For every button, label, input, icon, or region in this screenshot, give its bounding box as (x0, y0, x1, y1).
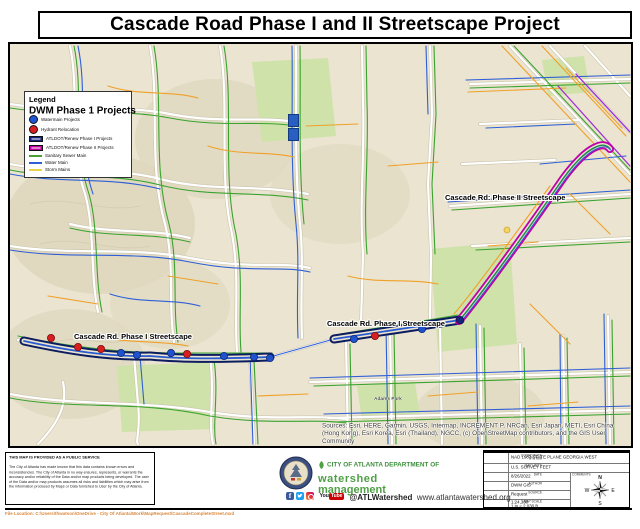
page-title: Cascade Road Phase I and II Streetscape … (110, 14, 560, 36)
date-value: 8/26/2022 (511, 474, 531, 479)
basemap-attribution: Sources: Esri, HERE, Garmin, USGS, Inter… (322, 422, 633, 448)
instagram-icon (306, 492, 314, 500)
city-of-atlanta-seal (279, 456, 313, 490)
legend-subtitle: DWM Phase 1 Projects (29, 105, 136, 116)
social-handle: @ATLWatershed (349, 493, 412, 502)
legend-item-phase1: ATLDOT/Renew Phase I Projects (29, 134, 127, 143)
legend-item-hydrant: Hydrant Relocation (29, 124, 127, 134)
compass-north: N (598, 475, 602, 481)
compass-south: S (598, 501, 602, 506)
compass-rose: N E S W (583, 472, 617, 506)
sewer-line-swatch-icon (29, 155, 42, 157)
adams-park-label: Adams Park (374, 396, 402, 401)
leaf-icon (318, 461, 325, 470)
disclaimer-box: THIS MAP IS PROVIDED AS A PUBLIC SERVICE… (5, 452, 155, 505)
file-location-text: File Location: C:\Users\thwatson\OneDriv… (5, 511, 234, 516)
legend-item-storm: Storm Mains (29, 166, 127, 173)
twitter-icon (296, 492, 304, 500)
disclaimer-body: The City of Atlanta has made known that … (9, 465, 153, 489)
title-bar: Cascade Road Phase I and II Streetscape … (38, 11, 632, 39)
poi-marker (504, 227, 510, 233)
storm-line-swatch-icon (29, 169, 42, 171)
phase2-swatch-icon (29, 145, 43, 151)
department-line: CITY OF ATLANTA DEPARTMENT OF (327, 462, 439, 468)
compass-west: W (585, 488, 590, 494)
footer-divider (5, 508, 632, 510)
legend-item-watermainline: Water Main (29, 159, 127, 166)
phase1-left-corridor-label: Cascade Rd. Phase I Streetscape (74, 332, 192, 341)
social-media-row: f YouTube @ATLWatershed www.atlantawater… (286, 488, 511, 504)
legend-item-phase2: ATLDOT/Renew Phase II Projects (29, 143, 127, 152)
author-value: DWM GIS (511, 483, 531, 488)
compass-east: E (611, 488, 615, 494)
source-value: Request (511, 492, 527, 497)
disclaimer-heading: THIS MAP IS PROVIDED AS A PUBLIC SERVICE (9, 455, 153, 460)
hydrant-swatch-icon (29, 125, 38, 134)
facebook-icon: f (286, 492, 294, 500)
phase1-swatch-icon (29, 136, 43, 142)
legend-title: Legend (29, 95, 127, 104)
map-sheet: Cascade Road Phase I and II Streetscape … (0, 0, 640, 529)
coordinate-system-value: NAD 1983 STATE PLANE GEORGIA WEST (511, 455, 597, 460)
legend-item-sewer: Sanitary Sewer Main (29, 152, 127, 159)
map-units-value: U.S. SURVEY FEET (511, 465, 551, 470)
youtube-icon: YouTube (318, 493, 344, 500)
legend: Legend DWM Phase 1 Projects Watermain Pr… (24, 91, 132, 178)
website-url: www.atlantawatershed.org (417, 493, 511, 502)
route-shield (288, 114, 297, 138)
watermain-line-swatch-icon (29, 162, 42, 164)
corridor-junction-marker (456, 316, 463, 323)
phase2-corridor-label: Cascade Rd: Phase II Streetscape (445, 193, 565, 202)
map-area: Cascade Rd: Phase II Streetscape Cascade… (8, 42, 633, 448)
phase1-mid-corridor-label: Cascade Rd. Phase I Streetscape (327, 319, 445, 328)
